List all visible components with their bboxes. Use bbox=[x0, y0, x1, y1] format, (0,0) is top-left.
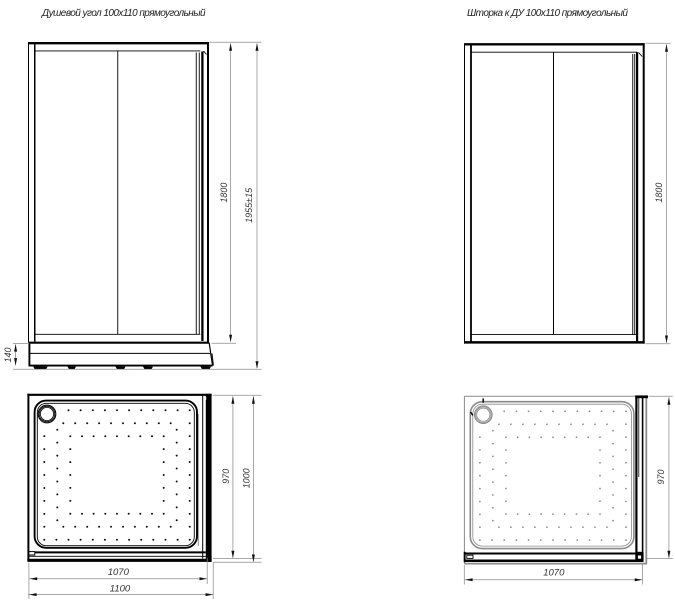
svg-text:1800: 1800 bbox=[654, 183, 664, 203]
svg-text:Шторка к ДУ 100х110 прямоуголь: Шторка к ДУ 100х110 прямоугольный bbox=[467, 8, 628, 19]
svg-text:1955±15: 1955±15 bbox=[244, 187, 254, 223]
svg-text:1800: 1800 bbox=[219, 183, 229, 203]
svg-text:1070: 1070 bbox=[108, 567, 130, 578]
svg-text:970: 970 bbox=[656, 469, 666, 484]
svg-text:970: 970 bbox=[221, 469, 231, 484]
svg-text:1100: 1100 bbox=[110, 584, 131, 595]
svg-text:Душевой угол 100х110 прямоугол: Душевой угол 100х110 прямоугольный bbox=[41, 8, 206, 19]
svg-text:140: 140 bbox=[3, 347, 13, 362]
svg-text:1000: 1000 bbox=[242, 468, 252, 488]
svg-text:1070: 1070 bbox=[543, 568, 565, 579]
